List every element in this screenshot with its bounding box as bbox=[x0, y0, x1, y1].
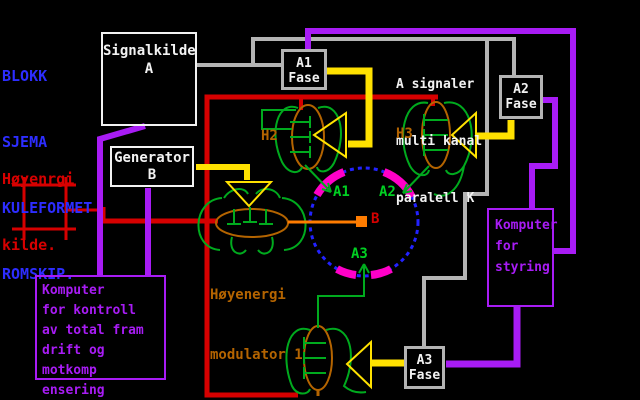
node-b-label: B bbox=[371, 212, 379, 227]
signal-source-id: A bbox=[103, 60, 195, 78]
steering-line: for bbox=[495, 236, 552, 257]
phase-a3-box: A3 Fase bbox=[404, 346, 445, 389]
phase-a3-word: Fase bbox=[407, 368, 442, 383]
node-a2-label: A2 bbox=[379, 185, 396, 200]
signal-source-box: Signalkilde A bbox=[101, 32, 197, 126]
modulator-label-line: Høyenergi bbox=[210, 285, 303, 305]
h2-grid-bars bbox=[290, 116, 310, 158]
phase-a2-id: A2 bbox=[502, 82, 540, 97]
energy-label-line: Høyenrgi bbox=[2, 168, 74, 190]
phase-a1-id: A1 bbox=[284, 56, 324, 71]
phase-a3-id: A3 bbox=[407, 353, 442, 368]
yellow-generator-to-modulator bbox=[196, 167, 247, 180]
purple-wire-steering-to-a3 bbox=[446, 306, 517, 364]
steering-computer-box: Komputer for styring bbox=[487, 208, 554, 307]
signal-source-name: Signalkilde bbox=[103, 42, 195, 60]
node-a3-label: A3 bbox=[351, 247, 368, 262]
generator-name: Generator bbox=[112, 150, 192, 167]
modulator-label: Høyenergi modulator 1 bbox=[210, 245, 303, 400]
generator-box: Generator B bbox=[110, 146, 194, 187]
modulator-grid-bars bbox=[227, 207, 273, 224]
steering-line: styring bbox=[495, 257, 552, 278]
node-a1-label: A1 bbox=[333, 185, 350, 200]
b-output bbox=[288, 216, 367, 227]
modulator-label-line: modulator 1 bbox=[210, 345, 303, 365]
control-line: av total fram bbox=[42, 321, 164, 341]
yellow-a1-to-h2 bbox=[327, 71, 369, 144]
a3-tube-grid-bars bbox=[304, 337, 326, 379]
control-line: ensering bbox=[42, 381, 164, 400]
b-node-dot bbox=[356, 216, 367, 227]
phase-a2-box: A2 Fase bbox=[499, 75, 543, 119]
steering-line: Komputer bbox=[495, 215, 552, 236]
generator-id: B bbox=[112, 167, 192, 184]
control-line: drift og motkomp bbox=[42, 341, 164, 381]
h2-tube-label: H2 bbox=[261, 129, 278, 144]
h3-tube-label: H3 bbox=[396, 127, 413, 142]
signals-note-line: paralell K bbox=[396, 189, 482, 208]
signals-note-line: A signaler bbox=[396, 75, 482, 94]
phase-a1-word: Fase bbox=[284, 71, 324, 86]
modulator-feed-triangle bbox=[227, 182, 271, 206]
control-line: for kontroll bbox=[42, 301, 164, 321]
energy-label-line: kilde. bbox=[2, 234, 74, 256]
control-computer-box: Komputer for kontroll av total fram drif… bbox=[35, 275, 166, 380]
block-diagram-screen: BLOKK SJEMA KULEFORMET ROMSKIP. Høyenrgi… bbox=[0, 0, 640, 400]
energy-source-label: Høyenrgi kilde. bbox=[2, 124, 74, 300]
control-line: Komputer bbox=[42, 281, 164, 301]
phase-a1-box: A1 Fase bbox=[281, 49, 327, 90]
phase-a2-word: Fase bbox=[502, 97, 540, 112]
title-line: BLOKK bbox=[2, 65, 92, 87]
